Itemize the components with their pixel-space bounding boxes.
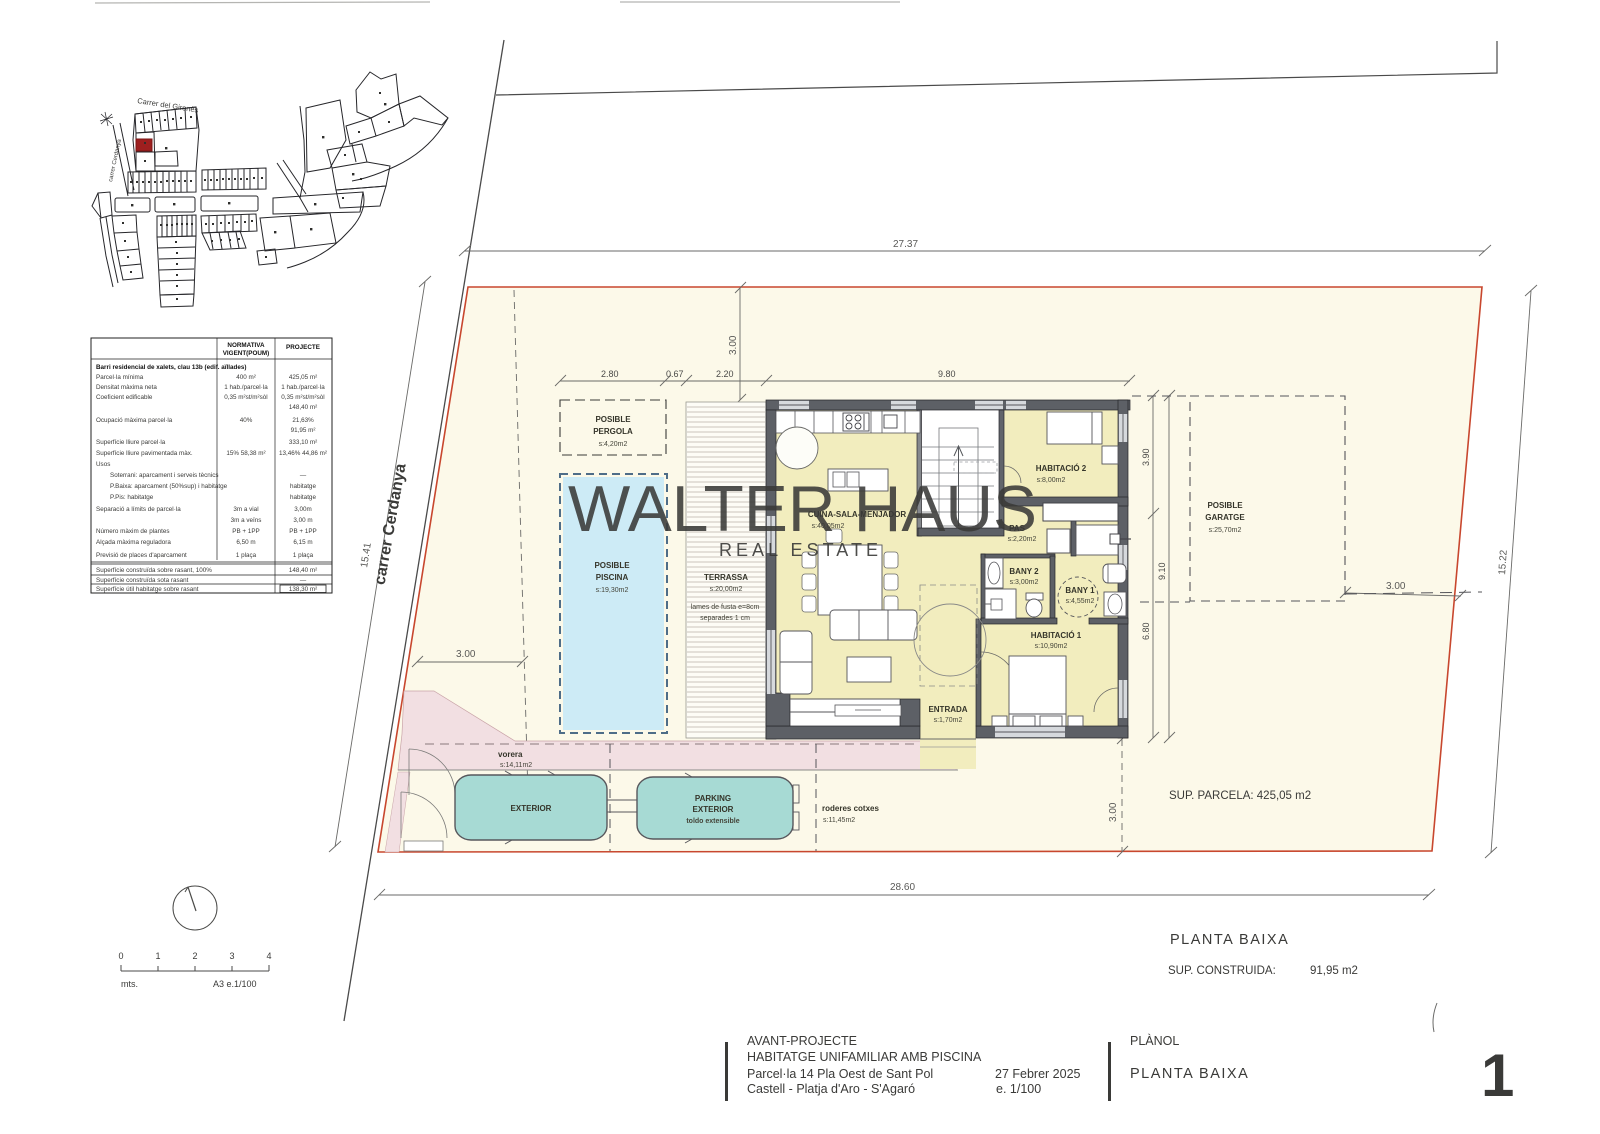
svg-text:Parcel·la 14 Pla Oest de Sant: Parcel·la 14 Pla Oest de Sant Pol — [747, 1067, 933, 1081]
svg-text:Superfície lliure pavimentada: Superfície lliure pavimentada màx. — [96, 450, 193, 457]
svg-text:GARATGE: GARATGE — [1205, 513, 1245, 522]
svg-text:27.37: 27.37 — [893, 239, 918, 250]
svg-text:HABITACIÓ 1: HABITACIÓ 1 — [1031, 631, 1082, 640]
svg-text:habitatge: habitatge — [290, 483, 316, 490]
svg-text:Barri residencial de xalets, c: Barri residencial de xalets, clau 13b (e… — [96, 364, 247, 371]
svg-text:3,00 m: 3,00 m — [293, 517, 312, 524]
svg-text:s:4,20m2: s:4,20m2 — [599, 441, 628, 448]
svg-text:POSIBLE: POSIBLE — [1207, 501, 1243, 510]
svg-text:HABITATGE UNIFAMILIAR AMB PISC: HABITATGE UNIFAMILIAR AMB PISCINA — [747, 1050, 982, 1064]
svg-text:2: 2 — [192, 951, 197, 961]
svg-text:EXTERIOR: EXTERIOR — [511, 804, 552, 813]
svg-text:Previsió de places d'aparcamen: Previsió de places d'aparcament — [96, 552, 187, 559]
svg-text:2.80: 2.80 — [601, 369, 619, 379]
svg-text:PROJECTE: PROJECTE — [286, 344, 320, 351]
svg-text:Ocupació màxima parcel·la: Ocupació màxima parcel·la — [96, 417, 173, 424]
svg-text:3m a vial: 3m a vial — [233, 506, 258, 513]
svg-text:PB + 1PP: PB + 1PP — [232, 528, 259, 535]
svg-text:Castell - Platja d'Aro - S'Aga: Castell - Platja d'Aro - S'Agaró — [747, 1082, 915, 1096]
svg-text:PISCINA: PISCINA — [596, 573, 629, 582]
svg-text:1 hab./parcel·la: 1 hab./parcel·la — [224, 384, 268, 391]
svg-text:s:25,70m2: s:25,70m2 — [1209, 527, 1242, 534]
svg-text:WALTER HAUS: WALTER HAUS — [568, 472, 1037, 545]
svg-text:27 Febrer 2025: 27 Febrer 2025 — [995, 1067, 1081, 1081]
svg-text:15% 58,38 m²: 15% 58,38 m² — [226, 450, 265, 457]
svg-text:9.80: 9.80 — [938, 369, 956, 379]
svg-text:Coeficient edificable: Coeficient edificable — [96, 394, 153, 401]
svg-text:9.10: 9.10 — [1157, 562, 1167, 580]
svg-text:HABITACIÓ 2: HABITACIÓ 2 — [1036, 464, 1087, 473]
svg-text:s:10,90m2: s:10,90m2 — [1035, 643, 1068, 650]
svg-text:21,63%: 21,63% — [292, 417, 314, 424]
svg-text:Superfície lliure parcel·la: Superfície lliure parcel·la — [96, 439, 166, 446]
svg-text:333,10 m²: 333,10 m² — [289, 439, 317, 446]
svg-text:2.20: 2.20 — [716, 369, 734, 379]
svg-text:BANY 1: BANY 1 — [1065, 586, 1095, 595]
svg-text:mts.: mts. — [121, 979, 138, 989]
svg-text:habitatge: habitatge — [290, 494, 316, 501]
svg-text:Parcel·la mínima: Parcel·la mínima — [96, 374, 144, 381]
svg-text:VIGENT(POUM): VIGENT(POUM) — [223, 350, 270, 357]
svg-text:91,95 m²: 91,95 m² — [291, 427, 316, 434]
svg-text:P.Baixa: aparcament (50%sup) i: P.Baixa: aparcament (50%sup) i habitatge — [110, 483, 228, 490]
svg-text:PLÀNOL: PLÀNOL — [1130, 1033, 1179, 1048]
svg-text:6,50 m: 6,50 m — [236, 539, 255, 546]
svg-text:400 m²: 400 m² — [236, 374, 256, 381]
svg-text:roderes cotxes: roderes cotxes — [822, 804, 879, 813]
svg-text:toldo extensible: toldo extensible — [686, 818, 739, 825]
svg-text:13,46% 44,86 m²: 13,46% 44,86 m² — [279, 450, 327, 457]
svg-text:POSIBLE: POSIBLE — [595, 415, 631, 424]
svg-text:40%: 40% — [240, 417, 253, 424]
svg-text:3.00: 3.00 — [728, 335, 739, 355]
svg-text:s:11,45m2: s:11,45m2 — [823, 817, 855, 824]
svg-text:POSIBLE: POSIBLE — [594, 561, 630, 570]
svg-text:425,05 m²: 425,05 m² — [289, 374, 317, 381]
svg-text:TERRASSA: TERRASSA — [704, 573, 748, 582]
svg-text:Número màxim de plantes: Número màxim de plantes — [96, 528, 170, 535]
svg-text:SUP. CONSTRUIDA:: SUP. CONSTRUIDA: — [1168, 965, 1276, 977]
svg-text:6,15 m: 6,15 m — [293, 539, 312, 546]
svg-text:NORMATIVA: NORMATIVA — [227, 342, 265, 349]
svg-text:A3 e.1/100: A3 e.1/100 — [213, 979, 257, 989]
svg-text:Separació a límits de parcel·l: Separació a límits de parcel·la — [96, 506, 181, 513]
svg-text:15.22: 15.22 — [1497, 549, 1510, 575]
svg-text:EXTERIOR: EXTERIOR — [693, 805, 734, 814]
svg-text:Soterrani: aparcament i servei: Soterrani: aparcament i serveis tècnics — [110, 472, 219, 479]
svg-text:ENTRADA: ENTRADA — [928, 705, 967, 714]
svg-text:1: 1 — [155, 951, 160, 961]
svg-text:P.Pis: habitatge: P.Pis: habitatge — [110, 494, 154, 501]
svg-text:separades 1 cm: separades 1 cm — [700, 615, 750, 622]
svg-text:s:8,00m2: s:8,00m2 — [1037, 477, 1066, 484]
svg-text:REAL ESTATE: REAL ESTATE — [719, 540, 878, 560]
svg-text:s:4,55m2: s:4,55m2 — [1066, 598, 1095, 605]
svg-text:1 hab./parcel·la: 1 hab./parcel·la — [281, 384, 325, 391]
svg-text:138,30 m²: 138,30 m² — [289, 586, 317, 593]
svg-text:3: 3 — [229, 951, 234, 961]
svg-text:Superfície construïda sota ras: Superfície construïda sota rasant — [96, 577, 189, 584]
svg-text:3.90: 3.90 — [1141, 448, 1151, 466]
svg-text:91,95 m2: 91,95 m2 — [1310, 965, 1358, 977]
svg-text:Superfície útil habitatge sobr: Superfície útil habitatge sobre rasant — [96, 586, 199, 593]
svg-text:PLANTA BAIXA: PLANTA BAIXA — [1130, 1066, 1249, 1082]
svg-text:s:14,11m2: s:14,11m2 — [500, 762, 532, 769]
svg-text:AVANT-PROJECTE: AVANT-PROJECTE — [747, 1034, 857, 1048]
svg-text:Alçada màxima reguladora: Alçada màxima reguladora — [96, 539, 171, 546]
svg-text:Densitat màxima neta: Densitat màxima neta — [96, 384, 157, 391]
svg-text:s:1,70m2: s:1,70m2 — [934, 717, 963, 724]
svg-text:148,40 m²: 148,40 m² — [289, 404, 317, 411]
svg-text:0,35 m²st/m²sòl: 0,35 m²st/m²sòl — [224, 394, 267, 401]
svg-text:28.60: 28.60 — [890, 882, 915, 893]
svg-text:0: 0 — [118, 951, 123, 961]
svg-text:s:20,00m2: s:20,00m2 — [710, 586, 743, 593]
svg-text:PB + 1PP: PB + 1PP — [289, 528, 316, 535]
svg-text:1 plaça: 1 plaça — [236, 552, 257, 559]
svg-text:3.00: 3.00 — [1386, 581, 1406, 592]
svg-text:3.00: 3.00 — [1108, 802, 1119, 822]
svg-text:1: 1 — [1481, 1042, 1514, 1109]
svg-text:3,00m: 3,00m — [294, 506, 312, 513]
svg-text:3.00: 3.00 — [456, 649, 476, 660]
svg-text:Superfície construïda sobre ra: Superfície construïda sobre rasant, 100% — [96, 567, 212, 574]
svg-text:0.67: 0.67 — [666, 369, 684, 379]
svg-text:BANY 2: BANY 2 — [1009, 567, 1039, 576]
svg-text:—: — — [300, 472, 307, 479]
svg-text:s:19,30m2: s:19,30m2 — [596, 587, 629, 594]
svg-text:e. 1/100: e. 1/100 — [996, 1082, 1041, 1096]
svg-text:PERGOLA: PERGOLA — [593, 427, 633, 436]
svg-text:s:3,00m2: s:3,00m2 — [1010, 579, 1039, 586]
svg-text:—: — — [300, 577, 307, 584]
svg-text:lames de fusta e=8cm: lames de fusta e=8cm — [691, 604, 760, 611]
svg-text:148,40 m²: 148,40 m² — [289, 567, 317, 574]
svg-text:6.80: 6.80 — [1141, 622, 1151, 640]
svg-text:4: 4 — [266, 951, 271, 961]
svg-text:vorera: vorera — [498, 750, 523, 759]
svg-text:PARKING: PARKING — [695, 794, 731, 803]
svg-text:1 plaça: 1 plaça — [293, 552, 314, 559]
svg-text:Usos: Usos — [96, 461, 110, 468]
svg-text:0,35 m²st/m²sòl: 0,35 m²st/m²sòl — [281, 394, 324, 401]
svg-text:PLANTA BAIXA: PLANTA BAIXA — [1170, 932, 1289, 948]
svg-text:3m a veïns: 3m a veïns — [231, 517, 262, 524]
svg-text:SUP. PARCELA: 425,05 m2: SUP. PARCELA: 425,05 m2 — [1169, 790, 1311, 802]
